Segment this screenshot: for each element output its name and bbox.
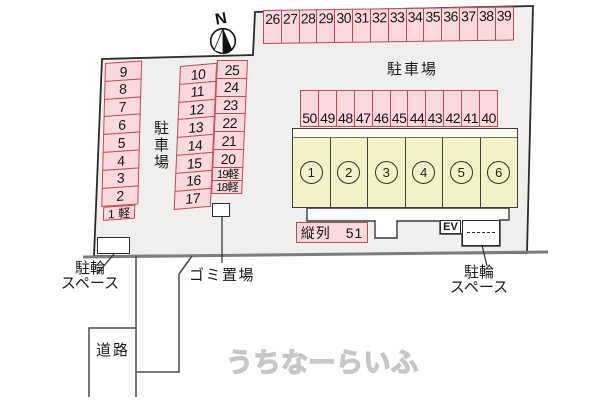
apartment-building: 123456 (292, 128, 518, 208)
bicycle-left-label-line2: スペース (52, 276, 128, 291)
compass-north-label: N (214, 10, 228, 29)
parking-space-label: 38 (479, 8, 494, 25)
bicycle-area-dashed-line (467, 232, 495, 233)
parking-space-label: 26 (265, 11, 280, 28)
parking-space-label: 47 (356, 111, 371, 126)
bicycle-right-label-line1: 駐輪 (446, 265, 512, 280)
elevator-box: EV (440, 220, 461, 234)
parking-space-28: 28 (299, 9, 318, 43)
building-unit-number: 3 (375, 161, 398, 184)
parking-space-label: 37 (461, 8, 476, 25)
parking-space-34: 34 (406, 8, 425, 42)
parking-space-label: 13 (188, 119, 203, 136)
parking-space-label: 33 (390, 9, 405, 26)
parking-space-label: 46 (374, 111, 389, 126)
parking-space-label: 5 (118, 134, 126, 151)
parking-space-label: 18軽 (216, 179, 238, 195)
building-unit-3: 3 (368, 138, 406, 207)
parking-space-46: 46 (372, 90, 391, 127)
bicycle-left-label-line1: 駐輪 (52, 261, 128, 276)
parking-space-label: 12 (189, 101, 204, 118)
compass: N (211, 10, 236, 54)
parking-space-35: 35 (423, 7, 442, 41)
parking-space-label: 40 (481, 111, 496, 126)
parking-space-47: 47 (354, 90, 373, 127)
building-unit-1: 1 (293, 138, 331, 207)
site-plan-diagram: N 2627282930313233343536373839 504948474… (0, 0, 600, 400)
parking-space-label: 8 (119, 81, 127, 98)
parking-space-label: 29 (319, 10, 334, 27)
parking-space-label: 6 (118, 116, 126, 133)
parking-space-label: 1 軽 (108, 204, 131, 223)
parking-space-45: 45 (390, 90, 409, 127)
parking-space-label: 15 (187, 154, 202, 171)
parking-space-40: 40 (479, 90, 498, 127)
parking-space-32: 32 (370, 8, 389, 42)
parking-lot-label-top: 駐車場 (387, 58, 438, 79)
parking-space-27: 27 (281, 9, 300, 43)
parking-space-label: 22 (222, 115, 237, 131)
parking-column-1-9: 987654321 軽 (101, 60, 142, 221)
parking-space-label: 44 (410, 111, 425, 126)
parking-space-26: 26 (263, 10, 282, 44)
parking-space-18軽: 18軽 (211, 180, 243, 194)
parking-space-43: 43 (425, 90, 444, 127)
parking-space-36: 36 (441, 7, 460, 41)
parking-column-18-25: 25242322212019軽18軽 (211, 60, 248, 194)
parking-space-label: 45 (392, 111, 407, 126)
parking-space-label: 48 (338, 111, 353, 126)
parking-space-30: 30 (334, 9, 353, 43)
building-unit-4: 4 (406, 138, 444, 207)
bicycle-right-label-line2: スペース (446, 280, 512, 295)
parking-space-29: 29 (316, 9, 335, 43)
parking-space-label: 42 (446, 111, 461, 126)
building-unit-number: 1 (300, 161, 323, 184)
building-unit-number: 2 (337, 161, 360, 184)
parking-space-label: 16 (186, 172, 201, 189)
parking-space-label: 32 (372, 9, 387, 26)
building-unit-2: 2 (331, 138, 369, 207)
building-unit-number: 5 (450, 161, 473, 184)
bicycle-area-right-box (462, 220, 500, 246)
bicycle-area-left-box (97, 237, 130, 254)
bicycle-area-right-label: 駐輪 スペース (446, 265, 512, 295)
building-unit-number: 6 (487, 161, 510, 184)
parking-space-label: 7 (118, 99, 126, 116)
parking-space-41: 41 (461, 90, 480, 127)
parking-space-50: 50 (300, 90, 319, 127)
parking-space-21: 21 (213, 131, 245, 150)
garbage-area-label: ゴミ置場 (189, 264, 255, 285)
parking-space-48: 48 (336, 90, 355, 127)
parking-space-33: 33 (388, 8, 407, 42)
building-unit-5: 5 (443, 138, 481, 207)
parking-space-label: 2 (116, 188, 124, 205)
parking-space-label: 36 (443, 8, 458, 25)
building-unit-number: 4 (412, 161, 435, 184)
parking-space-label: 28 (301, 10, 316, 27)
parking-space-17: 17 (174, 187, 212, 209)
parking-space-label: 23 (223, 97, 238, 113)
parking-space-label: 50 (302, 111, 317, 126)
parking-space-24: 24 (215, 78, 247, 97)
road-line-east (136, 256, 192, 372)
parking-space-label: 11 (190, 83, 204, 100)
parking-space-37: 37 (459, 7, 478, 41)
parking-space-label: 43 (428, 111, 443, 126)
parking-space-39: 39 (495, 7, 514, 41)
bicycle-area-left-label: 駐輪 スペース (52, 261, 128, 291)
garbage-area-box (212, 203, 230, 217)
parking-row-40-50: 5049484746454443424140 (300, 90, 498, 127)
road-label: 道路 (96, 339, 130, 360)
parking-space-label: 49 (320, 111, 335, 126)
building-units-row: 123456 (293, 138, 517, 207)
parking-space-label: 21 (221, 133, 236, 149)
parking-lot-label-left: 駐車場 (150, 120, 171, 171)
parking-space-label: 17 (185, 190, 200, 207)
parking-space-label: 10 (190, 65, 205, 82)
parking-space-label: 27 (283, 11, 298, 28)
parking-space-label: 9 (119, 63, 127, 80)
parking-row-26-39: 2627282930313233343536373839 (263, 7, 514, 44)
parking-space-label: 3 (117, 170, 125, 187)
parking-space-1軽: 1 軽 (103, 205, 135, 221)
parking-space-42: 42 (443, 90, 462, 127)
parking-space-label: 14 (187, 136, 202, 153)
parking-space-label: 39 (497, 8, 512, 25)
parking-space-49: 49 (318, 90, 337, 127)
parking-space-label: 31 (354, 10, 369, 27)
tandem-parking-51-box: 縦列 51 (296, 222, 368, 243)
parking-space-label: 25 (224, 62, 239, 78)
building-unit-6: 6 (481, 138, 518, 207)
parking-space-label: 24 (224, 79, 239, 95)
site-watermark: うちなーらいふ (226, 341, 419, 380)
parking-space-44: 44 (407, 90, 426, 127)
parking-space-25: 25 (216, 60, 248, 79)
parking-space-31: 31 (352, 8, 371, 42)
parking-space-38: 38 (477, 7, 496, 41)
parking-space-label: 30 (336, 10, 351, 27)
parking-space-label: 34 (408, 9, 423, 26)
parking-space-23: 23 (215, 96, 247, 115)
parking-space-label: 20 (221, 151, 236, 167)
parking-space-label: 4 (117, 152, 125, 169)
parking-space-label: 35 (426, 9, 441, 26)
parking-space-label: 41 (463, 111, 478, 126)
parking-space-22: 22 (214, 113, 246, 132)
building-corridor-strip (293, 129, 517, 138)
